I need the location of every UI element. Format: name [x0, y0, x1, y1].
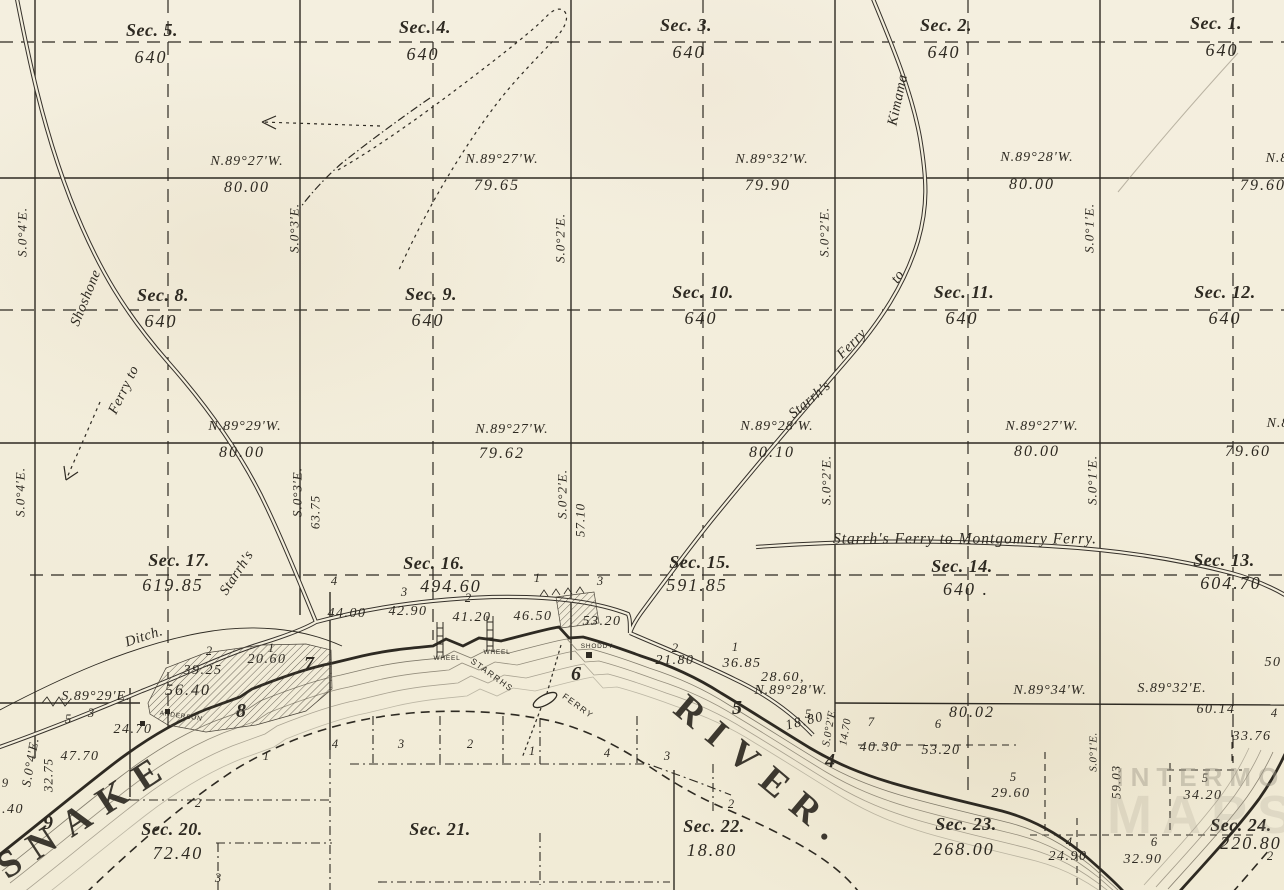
distance-label: 80.00	[219, 445, 265, 461]
section-acreage: 591.85	[666, 576, 728, 594]
vertical-distance-label: 63.75	[309, 495, 322, 529]
bearing-label: S.89°32'E.	[1137, 682, 1206, 696]
section-acreage: 72.40	[153, 844, 204, 862]
vertical-bearing-label: S.0°4'E.	[14, 467, 27, 517]
lot-number: 4	[331, 575, 337, 588]
ferry-label: STARRHS	[469, 657, 515, 694]
section-label: Sec. 14.	[931, 557, 993, 575]
bearing-label: N.89°28'W.	[740, 420, 813, 434]
distance-label: 28.60,	[761, 671, 805, 685]
section-label: Sec. 5.	[126, 21, 178, 39]
bearing-label: N.89°27'W.	[465, 153, 538, 167]
lot-number: 5	[805, 708, 811, 721]
structure-label: WHEEL	[483, 650, 510, 657]
section-label: Sec. 11.	[934, 283, 995, 301]
section-label: Sec. 20.	[141, 820, 203, 838]
structure-label: WHEEL	[433, 656, 460, 663]
section-acreage: 268.00	[933, 840, 995, 858]
lot-number: 1	[529, 745, 535, 758]
lot-distance-label: 53.20	[922, 744, 961, 758]
section-label: Sec. 23.	[935, 815, 997, 833]
lot-number: 1	[732, 641, 738, 654]
big-lot-number: 7	[304, 654, 314, 674]
distance-label: 80.00	[1014, 444, 1060, 460]
lot-number: 3	[664, 750, 670, 763]
distance-label: 80.02	[949, 705, 995, 721]
bearing-label: N.89°28'W.	[754, 684, 827, 698]
vertical-bearing-label: S.0°1'E.	[1089, 732, 1100, 771]
vertical-distance-label: 14.70	[838, 718, 854, 747]
big-lot-number: 8	[236, 701, 246, 721]
vertical-bearing-label: S.0°1'E.	[1083, 203, 1096, 253]
ditch-label: Ditch.	[123, 624, 164, 650]
lot-distance-label: 39.25	[184, 664, 223, 678]
structure-label: ANDERSON	[159, 711, 203, 723]
road-label: Shoshone	[68, 268, 104, 329]
distance-label: 79.90	[745, 178, 791, 194]
lot-distance-label: 20.60	[248, 653, 287, 667]
road-label: Ferry to	[106, 363, 142, 416]
section-acreage: 18.80	[687, 841, 738, 859]
section-label: Sec. 13.	[1193, 551, 1255, 569]
section-acreage: 640	[412, 311, 445, 329]
bearing-label: N.89°29'W.	[208, 420, 281, 434]
section-label: Sec. 15.	[669, 553, 731, 571]
vertical-distance-label: 57.10	[574, 503, 587, 537]
section-label: Sec. 4.	[399, 18, 451, 36]
section-acreage: 494.60	[420, 577, 482, 595]
bearing-label: N.89°27'W.	[1005, 420, 1078, 434]
lot-number: 2	[1267, 850, 1273, 863]
section-acreage: 640	[673, 43, 706, 61]
lot-number: 3	[401, 586, 407, 599]
lot-number: 2	[672, 642, 678, 655]
distance-label: 80.00	[224, 180, 270, 196]
section-label: Sec. 17.	[148, 551, 210, 569]
bearing-label: N.89°27'W.	[210, 155, 283, 169]
lot-distance-label: 40.30	[860, 741, 899, 755]
vertical-bearing-label: S.0°3'E.	[291, 467, 304, 517]
lot-number: 4	[332, 738, 338, 751]
vertical-bearing-label: S.0°1'E.	[1086, 455, 1099, 505]
section-acreage: 640	[145, 312, 178, 330]
vertical-bearing-label: S.0°2'E.	[821, 707, 839, 748]
watermark-text: MAPS	[1107, 788, 1284, 842]
plat-map-canvas: Sec. 5.640Sec. 4.640Sec. 3.640Sec. 2.640…	[0, 0, 1284, 890]
vertical-bearing-label: S.0°2'E.	[818, 207, 831, 257]
distance-label: 60.14	[1197, 703, 1236, 717]
lot-number: 6	[935, 718, 941, 731]
lot-distance-label: 32.90	[1124, 853, 1163, 867]
big-lot-number: 6	[571, 664, 581, 684]
distance-label: 80.00	[1009, 177, 1055, 193]
road-label: Ferry	[834, 326, 869, 361]
section-acreage: 640 .	[943, 580, 989, 598]
lot-number: 2	[195, 797, 201, 810]
section-label: Sec. 8.	[137, 286, 189, 304]
lot-number: 2	[206, 645, 212, 658]
section-acreage: 640	[946, 309, 979, 327]
section-acreage: 640	[1209, 309, 1242, 327]
distance-label: 79.60	[1225, 444, 1271, 460]
bearing-label: N.89°27'W.	[475, 423, 548, 437]
map-labels: Sec. 5.640Sec. 4.640Sec. 3.640Sec. 2.640…	[0, 0, 1284, 890]
bearing-label: N.8	[1266, 152, 1284, 166]
lot-number: 4	[604, 747, 610, 760]
lot-number: 3	[88, 707, 94, 720]
vertical-bearing-label: S.0°4'E.	[16, 207, 29, 257]
edge-distance-label: 50	[1265, 656, 1282, 670]
lot-distance-label: 44.00	[328, 607, 367, 621]
big-lot-number: 4	[825, 751, 835, 771]
distance-label: 79.65	[474, 178, 520, 194]
lot-number: 3	[597, 575, 603, 588]
bearing-label: S.89°29'E.	[61, 690, 130, 704]
bearing-label: N.89°34'W.	[1013, 684, 1086, 698]
bearing-label: N.8	[1267, 417, 1284, 431]
vertical-bearing-label: S.0°4'E.	[19, 736, 40, 787]
lot-number: 5	[1010, 771, 1016, 784]
bearing-label: N.89°32'W.	[735, 153, 808, 167]
lot-distance-label: 47.70	[61, 750, 100, 764]
big-lot-number: 5	[732, 698, 742, 718]
section-label: Sec. 12.	[1194, 283, 1256, 301]
bearing-label: N.89°28'W.	[1000, 151, 1073, 165]
lot-distance-label: 36.85	[723, 657, 762, 671]
lot-distance-label: 29.60	[992, 787, 1031, 801]
lot-distance-label: 42.90	[389, 605, 428, 619]
distance-label: 80.10	[749, 445, 795, 461]
distance-label: 79.60	[1240, 178, 1284, 194]
lot-distance-label: 53.20	[583, 615, 622, 629]
section-acreage: 640	[685, 309, 718, 327]
lot-number: 4	[1271, 707, 1277, 720]
lot-number: 3	[215, 872, 221, 885]
lot-number: 7	[868, 716, 874, 729]
section-label: Sec. 1.	[1190, 14, 1242, 32]
lot-distance-label: .40	[2, 803, 24, 817]
ferry-label: FERRY	[561, 692, 595, 720]
lot-distance-label: 24.90	[1049, 850, 1088, 864]
lot-number: 2	[465, 592, 471, 605]
road-label: to	[889, 268, 908, 286]
lot-number: 5	[65, 713, 71, 726]
lot-number: 9	[2, 777, 8, 790]
lot-distance-label: 46.50	[514, 610, 553, 624]
road-label: Starrh's	[786, 379, 833, 422]
section-label: Sec. 3.	[660, 16, 712, 34]
section-acreage: 640	[407, 45, 440, 63]
distance-label: 33.76	[1233, 730, 1272, 744]
vertical-bearing-label: S.0°2'E.	[820, 455, 833, 505]
vertical-bearing-label: S.0°3'E.	[288, 203, 301, 253]
structure-label: SHODDY	[581, 644, 614, 651]
section-label: Sec. 2.	[920, 16, 972, 34]
vertical-distance-label: 32.75	[42, 758, 55, 792]
distance-label: 79.62	[479, 446, 525, 462]
section-acreage: 619.85	[142, 576, 204, 594]
lot-distance-label: 24.70	[114, 723, 153, 737]
section-label: Sec. 22.	[683, 817, 745, 835]
lot-number: 3	[398, 738, 404, 751]
section-label: Sec. 16.	[403, 554, 465, 572]
section-acreage: 640	[928, 43, 961, 61]
lot-number: 2	[728, 798, 734, 811]
lot-number: 4	[1066, 836, 1072, 849]
section-acreage: 604.70	[1200, 574, 1262, 592]
vertical-bearing-label: S.0°2'E.	[554, 213, 567, 263]
section-label: Sec. 10.	[672, 283, 734, 301]
road-label: Kimama	[885, 73, 910, 127]
lot-number: 1	[268, 642, 274, 655]
section-label: Sec. 21.	[409, 820, 471, 838]
lot-number: 2	[467, 738, 473, 751]
section-label: Sec. 9.	[405, 285, 457, 303]
section-acreage: 640	[135, 48, 168, 66]
lot-distance-label: 41.20	[453, 611, 492, 625]
road-label: Starrh's Ferry to Montgomery Ferry.	[833, 531, 1097, 547]
lot-distance-label: 21.80	[656, 654, 695, 668]
vertical-bearing-label: S.0°2'E.	[556, 469, 569, 519]
section-acreage: 640	[1206, 41, 1239, 59]
road-label: Starrh's	[217, 548, 256, 597]
lot-number: 1	[534, 572, 540, 585]
lot-distance-label: 56.40	[165, 683, 211, 699]
lot-number: 1	[263, 750, 269, 763]
